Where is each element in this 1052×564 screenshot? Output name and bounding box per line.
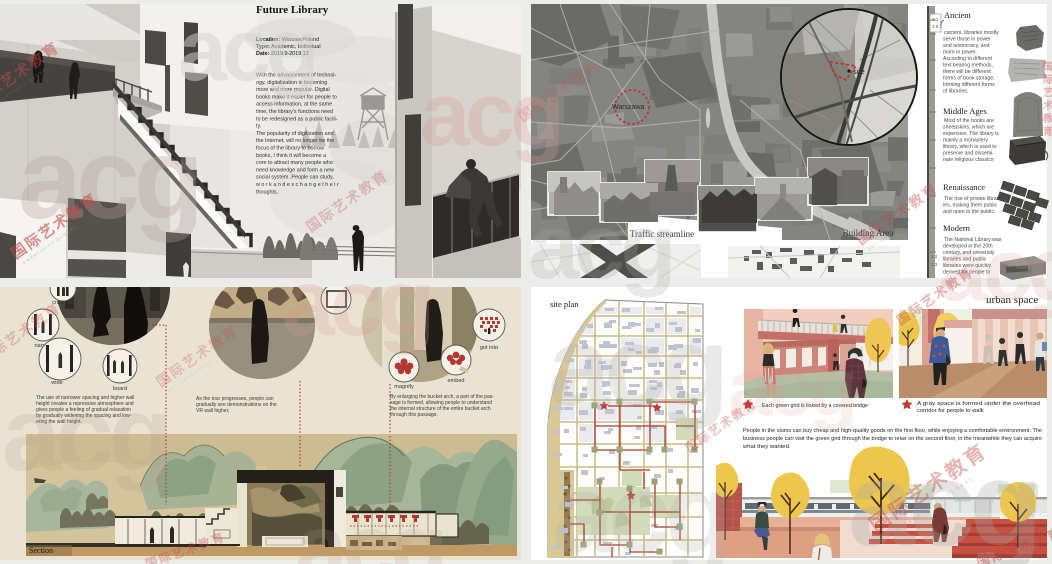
svg-text:People in the slums can buy ch: People in the slums can buy cheap and hi…	[743, 428, 1043, 434]
svg-text:mainly a monastery: mainly a monastery	[943, 138, 988, 144]
svg-text:the Internet, will no longer b: the Internet, will no longer be the	[256, 138, 334, 144]
svg-text:magnify: magnify	[394, 384, 414, 390]
svg-text:sheepskins, which are: sheepskins, which are	[943, 125, 994, 131]
svg-text:2 0: 2 0	[932, 24, 939, 29]
svg-text:Traffic streamline: Traffic streamline	[630, 229, 694, 239]
svg-text:Date: 2019.9-2019.12: Date: 2019.9-2019.12	[256, 51, 309, 57]
svg-text:nate religious classics: nate religious classics	[943, 157, 994, 163]
svg-text:Middle Ages: Middle Ages	[943, 106, 987, 116]
svg-text:Location: Warsaw,Poland: Location: Warsaw,Poland	[256, 37, 319, 43]
svg-text:there will be different: there will be different	[943, 69, 991, 75]
svg-text:library, which is used to: library, which is used to	[943, 144, 997, 150]
svg-text:century, and university: century, and university	[943, 250, 995, 256]
svg-text:2 1: 2 1	[932, 17, 939, 22]
svg-text:carriers, libraries mostly: carriers, libraries mostly	[944, 30, 999, 36]
svg-text:cramped: cramped	[52, 300, 74, 306]
svg-text:1 2: 1 2	[931, 254, 938, 259]
svg-text:libraries were quickly: libraries were quickly	[943, 263, 992, 269]
svg-text:VR wall higher,: VR wall higher,	[196, 408, 229, 414]
svg-text:Modern: Modern	[943, 223, 971, 233]
svg-text:The National Library was: The National Library was	[944, 237, 1002, 243]
svg-text:Building Area: Building Area	[843, 228, 894, 238]
svg-text:The rise of private librar-: The rise of private librar-	[944, 196, 1000, 202]
svg-text:to be redesigned as a public f: to be redesigned as a public facili-	[256, 116, 338, 122]
svg-text:A gray space is formed under t: A gray space is formed under the overhea…	[917, 401, 1040, 407]
svg-text:core to attract many people wh: core to attract many people who	[256, 160, 333, 166]
svg-text:With the advancement of techno: With the advancement of technol-	[256, 73, 337, 79]
svg-text:corridor for people to walk: corridor for people to walk	[917, 408, 984, 414]
svg-text:books make it easier for peopl: books make it easier for people to	[256, 94, 337, 100]
svg-text:expensive. The library is: expensive. The library is	[943, 131, 999, 137]
svg-text:1 3: 1 3	[931, 262, 938, 267]
svg-text:business people can visit the: business people can visit the green grid…	[743, 436, 1043, 442]
svg-text:site: site	[853, 67, 865, 76]
svg-text:preserve and dissemi-: preserve and dissemi-	[943, 151, 994, 157]
svg-text:libraries and public: libraries and public	[943, 257, 987, 263]
svg-text:The popularity of digitization: The popularity of digitization and	[256, 131, 334, 137]
svg-text:forms of book storage,: forms of book storage,	[943, 76, 995, 82]
svg-text:of libraries.: of libraries.	[943, 89, 968, 95]
svg-text:and aristocracy, and: and aristocracy, and	[943, 43, 989, 49]
svg-text:wide: wide	[50, 380, 63, 386]
svg-text:site plan: site plan	[550, 299, 579, 309]
svg-text:focus of the library to borrow: focus of the library to borrow	[256, 146, 324, 152]
svg-text:Renaissance: Renaissance	[943, 182, 985, 192]
svg-text:books, I think it will become: books, I think it will become a	[256, 153, 326, 159]
svg-text:through this passage.: through this passage.	[390, 412, 438, 418]
svg-text:Section: Section	[29, 546, 53, 555]
svg-text:thoughts.: thoughts.	[256, 189, 278, 195]
svg-text:derived for people to: derived for people to	[943, 270, 990, 276]
svg-text:Each green grid is linked by a: Each green grid is linked by a covered b…	[762, 403, 868, 409]
svg-text:text bearing methods,: text bearing methods,	[943, 63, 993, 69]
svg-text:Warszawa: Warszawa	[612, 104, 645, 111]
svg-text:got into: got into	[480, 345, 498, 351]
svg-text:Most of the books are: Most of the books are	[944, 118, 994, 124]
svg-text:ies, making them public: ies, making them public	[943, 203, 998, 209]
svg-text:time, the library's functions: time, the library's functions need	[256, 109, 333, 115]
svg-text:ering the wall height.: ering the wall height.	[36, 419, 82, 425]
svg-text:w o r k a n d e x c h a n g: w o r k a n d e x c h a n g e t h e i r	[255, 182, 339, 188]
svg-text:social system..People can stud: social system..People can study,	[256, 175, 334, 181]
svg-text:more in power.: more in power.	[943, 50, 977, 56]
svg-text:Type: Academic, Individual: Type: Academic, Individual	[256, 44, 321, 50]
svg-text:embed: embed	[447, 378, 464, 384]
svg-text:serve those in power: serve those in power	[943, 37, 991, 43]
svg-text:and open to the public: and open to the public	[943, 209, 994, 215]
svg-text:ogy, digitalization is becomin: ogy, digitalization is becoming	[256, 80, 327, 86]
svg-text:developed in the 20th: developed in the 20th	[943, 244, 993, 250]
svg-text:what they wanted.: what they wanted.	[742, 444, 791, 450]
svg-text:Future Library: Future Library	[256, 4, 329, 16]
svg-text:urban space: urban space	[986, 294, 1038, 306]
svg-text:Ancient: Ancient	[944, 10, 972, 20]
svg-text:ty.: ty.	[256, 124, 261, 130]
svg-text:more and more popular. Digital: more and more popular. Digital	[256, 87, 330, 93]
svg-text:According to different: According to different	[943, 56, 992, 62]
svg-text:access information, at the sam: access information, at the same	[256, 102, 332, 108]
svg-text:board: board	[113, 386, 127, 392]
svg-text:need knowledge and form a new: need knowledge and form a new	[256, 167, 334, 173]
svg-text:forming different forms: forming different forms	[943, 82, 995, 88]
